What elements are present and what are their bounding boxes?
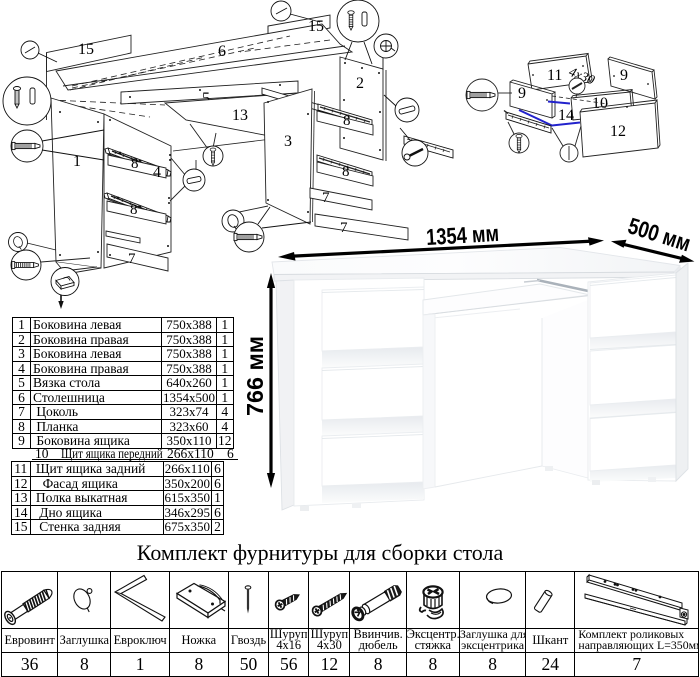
svg-text:9: 9 [518, 85, 526, 102]
svg-text:7: 7 [340, 220, 348, 236]
svg-text:13: 13 [232, 107, 248, 124]
svg-text:1354 мм: 1354 мм [425, 220, 499, 250]
svg-text:8: 8 [131, 156, 139, 172]
svg-text:14: 14 [558, 107, 574, 124]
svg-text:8: 8 [343, 113, 351, 129]
svg-text:3: 3 [284, 133, 292, 150]
svg-text:766 мм: 766 мм [242, 336, 268, 416]
svg-text:7: 7 [322, 190, 330, 206]
svg-text:8: 8 [130, 202, 138, 218]
svg-text:8: 8 [342, 164, 350, 180]
svg-text:4: 4 [153, 164, 161, 181]
svg-text:9: 9 [620, 67, 628, 84]
svg-text:12: 12 [610, 123, 626, 140]
svg-text:2: 2 [356, 75, 364, 92]
svg-text:7: 7 [128, 251, 136, 267]
svg-text:500 мм: 500 мм [625, 212, 694, 256]
svg-text:11: 11 [547, 67, 562, 84]
svg-text:15: 15 [78, 41, 94, 58]
